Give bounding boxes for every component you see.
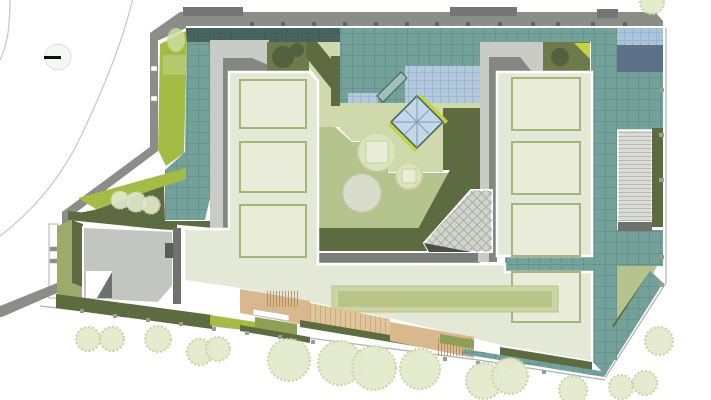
south-boundary-tick: [146, 318, 150, 322]
wall-tick: [151, 96, 157, 101]
nw-green-strip: [158, 31, 187, 166]
parapet-tick: [466, 22, 470, 26]
atrium-olive-east: [443, 108, 480, 170]
planter-tree: [551, 48, 569, 66]
parapet-tick: [531, 22, 535, 26]
parapet-block-mid: [450, 7, 517, 16]
northeast-blue-panel-grid: [617, 45, 663, 72]
parapet-tick: [435, 22, 439, 26]
parapet-tick: [250, 22, 254, 26]
courtyard-tree-planter: [402, 169, 416, 183]
survey-symbol: [44, 44, 71, 70]
roof-panel: [240, 205, 306, 257]
long-planter-inner: [338, 291, 552, 307]
east-boundary-tick: [659, 178, 664, 182]
east-terrace-lines: [618, 130, 652, 222]
east-glass-lower-grid: [617, 230, 663, 266]
street-tree: [352, 346, 396, 390]
south-boundary-tick: [113, 314, 117, 318]
parapet-tick: [312, 22, 316, 26]
east-glass-vertical-grid: [591, 42, 617, 360]
parapet-inner-line: [186, 26, 663, 28]
roof-panel: [512, 78, 580, 130]
parapet-tick: [343, 22, 347, 26]
parapet-block-west: [183, 7, 243, 16]
street-tree: [100, 327, 124, 351]
south-boundary-tick: [542, 370, 546, 374]
entrance-door-block: [165, 243, 173, 258]
wall-tick: [50, 247, 57, 251]
parapet-tick: [623, 22, 627, 26]
site-plan-canvas: [0, 0, 711, 400]
street-tree: [400, 349, 440, 389]
street-tree: [492, 358, 528, 394]
north-glass-band-west-grid: [186, 28, 340, 42]
roof-panel: [240, 80, 306, 128]
atrium-olive-strip: [331, 56, 340, 106]
parapet-tick: [405, 22, 409, 26]
parapet-tick: [591, 22, 595, 26]
roof-panel: [512, 142, 580, 194]
roof-panel: [512, 204, 580, 256]
parapet-tick: [498, 22, 502, 26]
south-boundary-tick: [80, 309, 84, 313]
east-glass-upper-grid: [617, 72, 663, 130]
deck-west-stairs: [266, 291, 298, 307]
east-boundary-tick: [659, 283, 664, 287]
north-glass-band-blue-grid: [617, 28, 663, 45]
parapet-tick: [281, 22, 285, 26]
nw-tree: [167, 28, 185, 52]
south-boundary-tick: [179, 322, 183, 326]
street-tree: [633, 371, 657, 395]
slope-bush: [142, 196, 160, 214]
street-tree: [76, 327, 100, 351]
east-terrace-shadow: [618, 222, 652, 231]
survey-dash: [44, 56, 61, 59]
roof-panel: [240, 142, 306, 192]
north-glass-band-mid-grid: [340, 28, 617, 42]
parapet-block-east: [597, 9, 618, 18]
south-boundary-tick: [212, 327, 216, 331]
south-boundary-tick: [278, 335, 282, 339]
entrance-east-wall: [173, 228, 181, 304]
parapet-tick: [374, 22, 378, 26]
south-boundary-tick: [311, 340, 315, 344]
nw-green-strip-panel: [163, 55, 186, 75]
courtyard-tree-planter: [366, 141, 388, 163]
street-tree: [145, 326, 171, 352]
wall-tick: [151, 66, 157, 71]
street-tree: [645, 327, 673, 355]
parapet-tick: [556, 22, 560, 26]
east-boundary-tick: [659, 88, 664, 92]
east-olive-strip: [652, 128, 663, 227]
courtyard-paved-circle: [343, 174, 381, 212]
street-tree: [206, 337, 230, 361]
street-tree: [609, 375, 633, 399]
wall-tick: [50, 259, 57, 263]
east-boundary-tick: [659, 255, 664, 259]
south-boundary-tick: [443, 357, 447, 361]
south-boundary-tick: [245, 331, 249, 335]
street-tree: [268, 339, 310, 381]
entrance-frame-left: [72, 220, 83, 287]
glass-cross-band-grid: [505, 256, 593, 272]
east-boundary-tick: [659, 133, 664, 137]
courtyard-gray-band: [319, 253, 480, 264]
planter-tree: [290, 43, 304, 57]
